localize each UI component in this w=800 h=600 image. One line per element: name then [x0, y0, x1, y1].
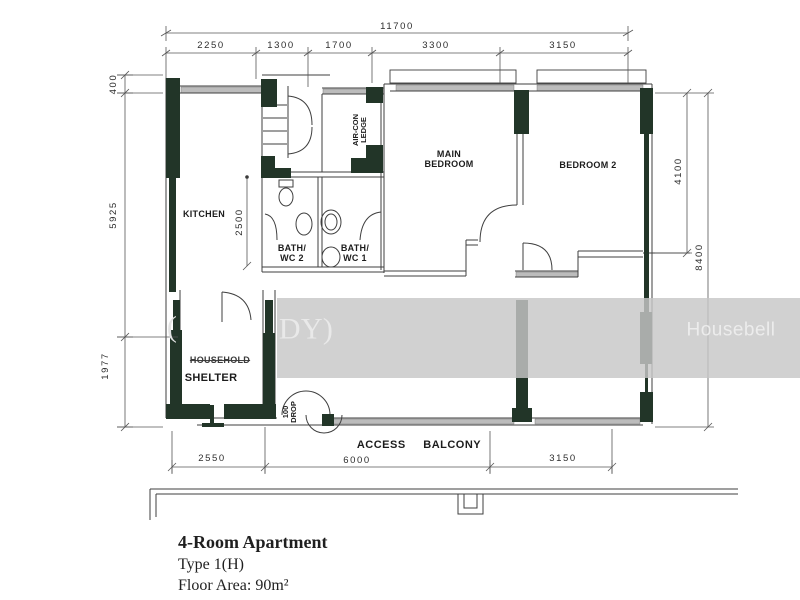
dim-left-5925: 5925	[109, 201, 119, 229]
dim-top-seg-4: 3300	[422, 41, 450, 51]
room-label-bath-wc1: BATH/ WC 1	[341, 244, 369, 264]
plan-title: 4-Room Apartment	[178, 532, 327, 553]
window-ledge	[537, 70, 646, 83]
watermark-brand: Housebell	[687, 321, 776, 342]
room-label-aircon-ledge: AIR-CON LEDGE	[352, 114, 369, 146]
floor-plan-image: ( DY) Housebell 11700 2250 1300 1700 330…	[0, 0, 800, 600]
annotation-drop-line2: DROP	[290, 401, 298, 423]
annotation-100-drop: 100 DROP	[282, 401, 299, 423]
dim-bottom-6000: 6000	[343, 456, 371, 466]
room-label-household: HOUSEHOLD	[190, 356, 250, 366]
dim-left-400: 400	[109, 74, 119, 95]
dim-top-seg-3: 1700	[325, 41, 353, 51]
room-label-main-bedroom-line2: BEDROOM	[424, 160, 473, 170]
room-label-kitchen: KITCHEN	[183, 210, 225, 220]
corridor-outline	[150, 489, 738, 520]
dim-top-seg-1: 2250	[197, 41, 225, 51]
room-label-aircon-line2: LEDGE	[360, 114, 368, 146]
label-access-balcony: ACCESS BALCONY	[357, 439, 481, 451]
dim-top-seg-5: 3150	[549, 41, 577, 51]
watermark-fragment-open: (	[167, 311, 177, 344]
room-label-bath-wc1-line2: WC 1	[341, 254, 369, 264]
dim-top-total: 11700	[380, 22, 414, 32]
room-label-bath-wc2-line2: WC 2	[278, 254, 306, 264]
plan-type: Type 1(H)	[178, 556, 244, 574]
wall-outline	[166, 75, 690, 433]
room-label-shelter: SHELTER	[185, 372, 238, 384]
watermark-fragment-right: DY)	[279, 313, 333, 346]
room-label-main-bedroom: MAIN BEDROOM	[424, 150, 473, 170]
window-ledge	[390, 70, 516, 83]
plan-floor-area: Floor Area: 90m²	[178, 577, 289, 595]
dim-left-1977: 1977	[101, 352, 111, 380]
room-label-bath-wc2: BATH/ WC 2	[278, 244, 306, 264]
room-label-bedroom2: BEDROOM 2	[559, 161, 616, 171]
dim-bath-2500: 2500	[235, 208, 245, 236]
dim-right-4100: 4100	[674, 157, 684, 185]
dim-top-seg-2: 1300	[267, 41, 295, 51]
dim-right-8400: 8400	[695, 243, 705, 271]
dim-bottom-2550: 2550	[198, 454, 226, 464]
dim-bottom-3150: 3150	[549, 454, 577, 464]
